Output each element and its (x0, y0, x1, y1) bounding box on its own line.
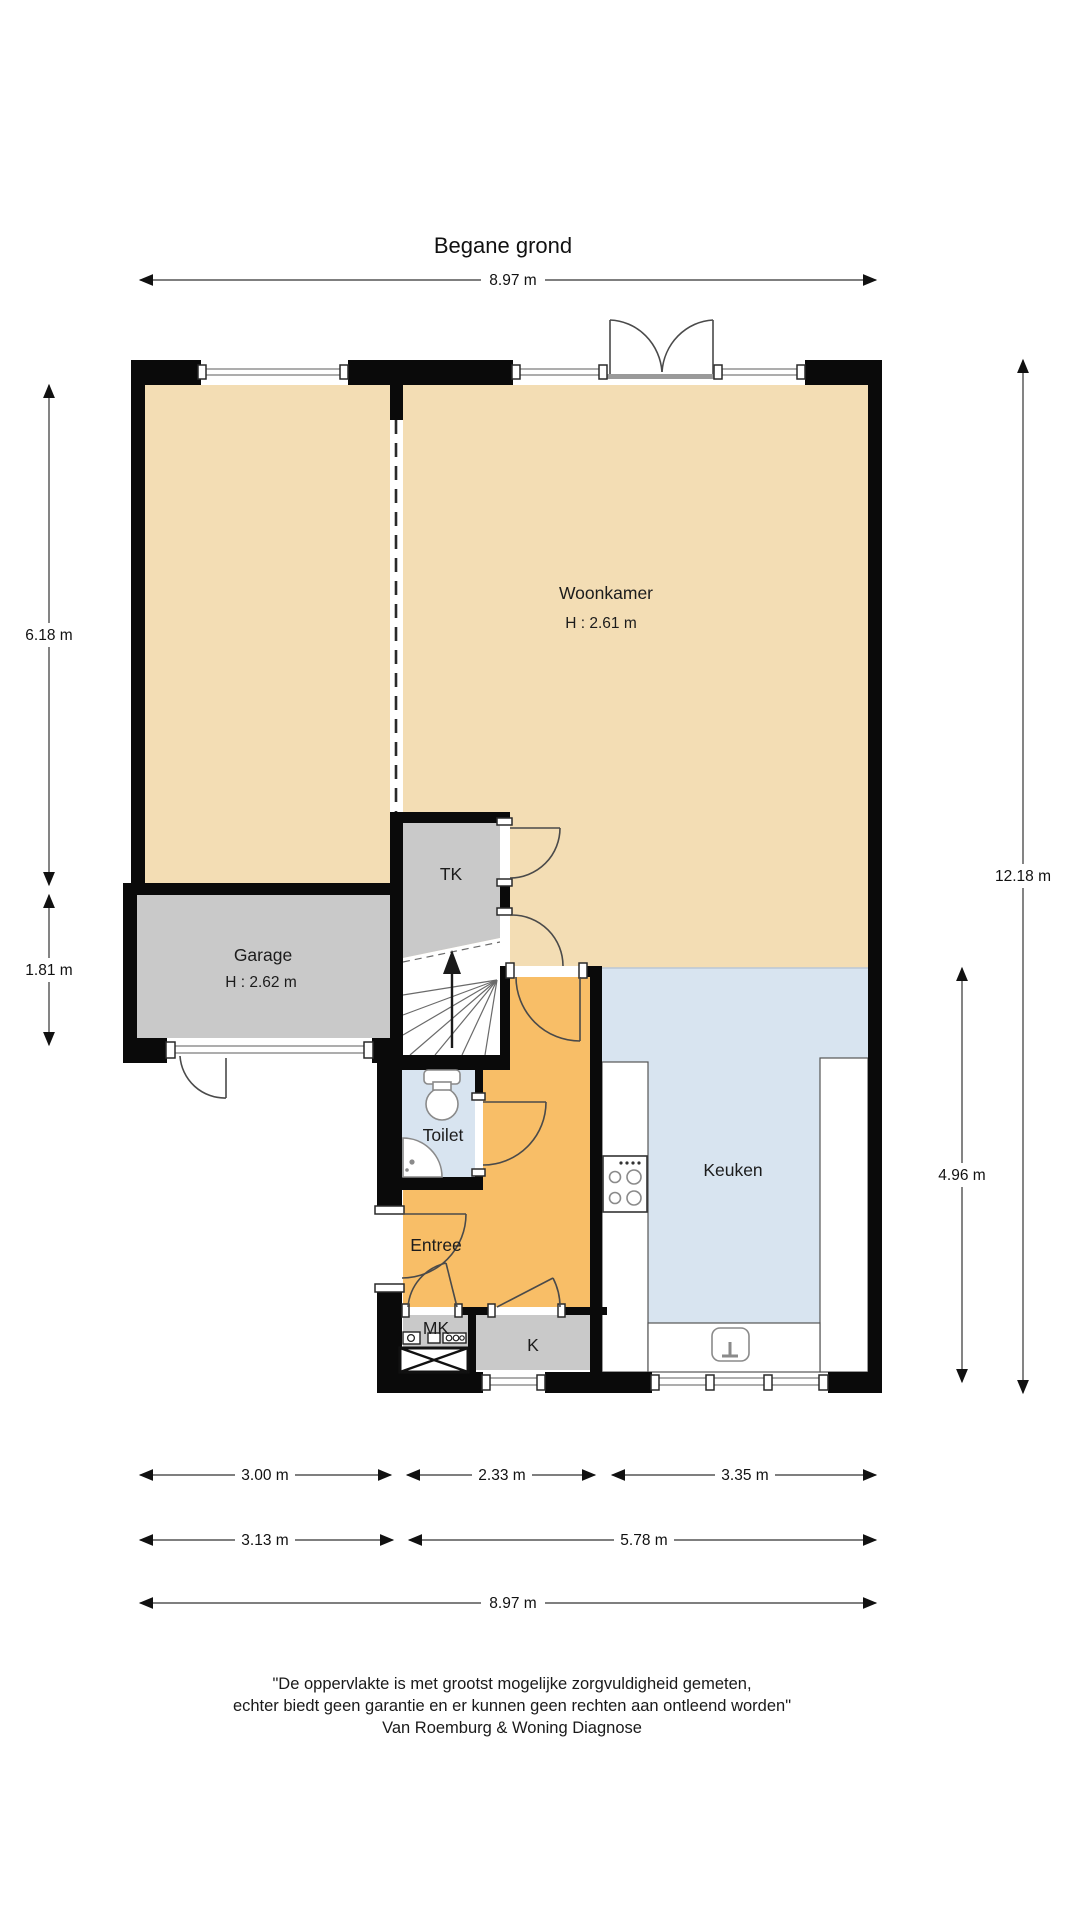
disclaimer-line1: "De oppervlakte is met grootst mogelijke… (272, 1675, 751, 1693)
disclaimer-line2: echter biedt geen garantie en er kunnen … (233, 1697, 791, 1715)
kitchen-sink-fixture (712, 1328, 749, 1361)
dim-bottom1-3: 3.35 m (721, 1467, 768, 1484)
counter-left (602, 1062, 648, 1372)
label-tk: TK (440, 864, 463, 884)
dim-bottom1-2: 2.33 m (478, 1467, 525, 1484)
label-woonkamer-height: H : 2.61 m (565, 615, 637, 632)
window-top-right (722, 369, 800, 375)
room-garage (137, 895, 390, 1038)
label-garage: Garage (234, 945, 292, 965)
dim-right-total: 12.18 m (995, 868, 1051, 885)
disclaimer-line3: Van Roemburg & Woning Diagnose (382, 1719, 642, 1737)
french-door-sill (607, 374, 716, 379)
dim-right-inner: 4.96 m (938, 1167, 985, 1184)
stove-fixture (603, 1156, 647, 1212)
label-mk: MK (423, 1318, 450, 1338)
label-garage-height: H : 2.62 m (225, 974, 297, 991)
dim-bottom1-1: 3.00 m (241, 1467, 288, 1484)
floorplan-canvas: Woonkamer H : 2.61 m Garage H : 2.62 m T… (0, 0, 1080, 1920)
dim-top-total: 8.97 m (489, 272, 536, 289)
garage-door (174, 1046, 365, 1053)
dim-left-upper: 6.18 m (25, 627, 72, 644)
room-divider-dashed (390, 420, 403, 812)
room-tk (403, 823, 500, 958)
label-k: K (527, 1335, 539, 1355)
dim-left-lower: 1.81 m (25, 962, 72, 979)
toilet-fixture (424, 1070, 460, 1120)
counter-right (820, 1058, 868, 1372)
window-bottom-keuken (658, 1378, 821, 1385)
dim-bottom-total: 8.97 m (489, 1595, 536, 1612)
window-top-middle (519, 369, 601, 375)
label-woonkamer: Woonkamer (559, 583, 653, 603)
room-left-living (145, 385, 390, 883)
void-hatch (400, 1348, 468, 1372)
label-toilet: Toilet (423, 1125, 464, 1145)
window-top-left (205, 369, 344, 375)
label-entree: Entree (410, 1235, 462, 1255)
dim-bottom2-2: 5.78 m (620, 1532, 667, 1549)
dim-bottom2-1: 3.13 m (241, 1532, 288, 1549)
page-title: Begane grond (434, 233, 572, 258)
window-bottom-k (489, 1378, 539, 1385)
label-keuken: Keuken (703, 1160, 762, 1180)
floorplan-page: Woonkamer H : 2.61 m Garage H : 2.62 m T… (0, 0, 1080, 1920)
